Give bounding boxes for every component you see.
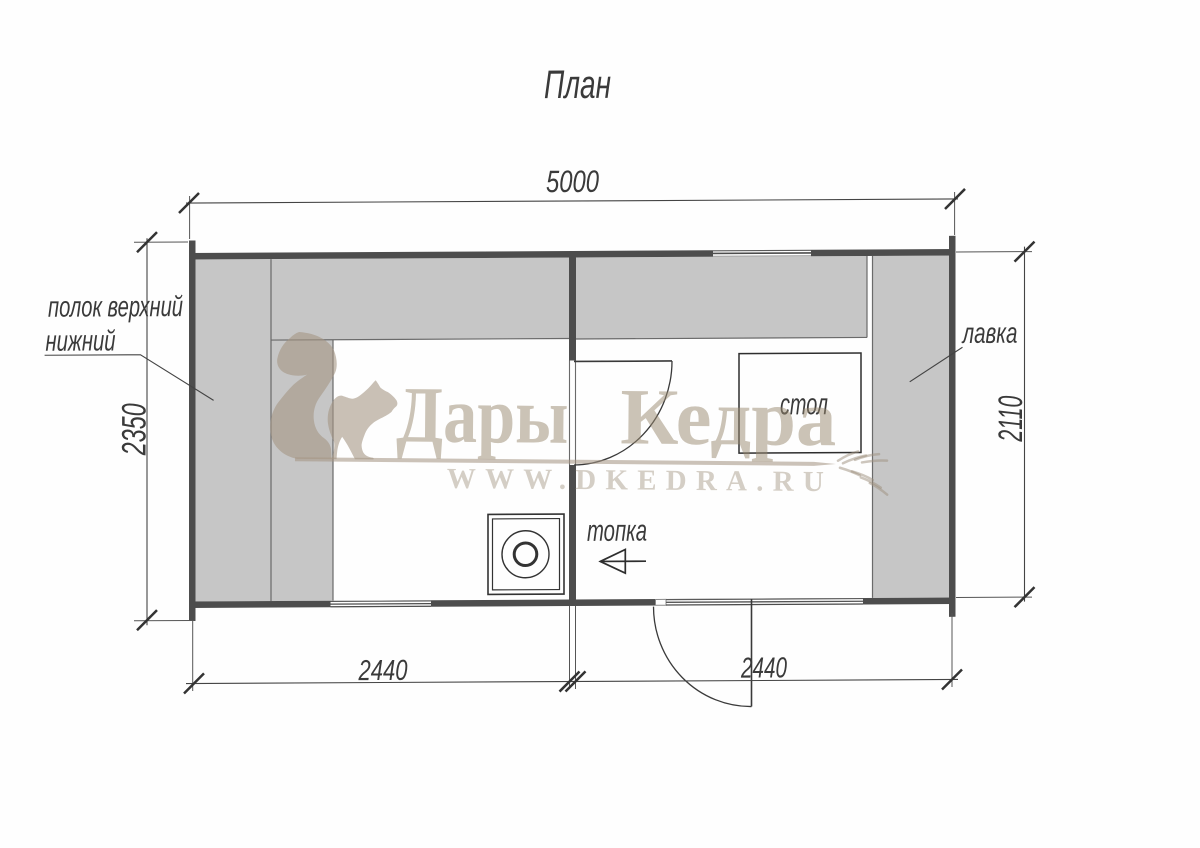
svg-text:Кедра: Кедра [620,373,837,463]
svg-text:Дары: Дары [396,371,569,460]
svg-text:WWW.DKEDRA.RU: WWW.DKEDRA.RU [447,463,824,498]
